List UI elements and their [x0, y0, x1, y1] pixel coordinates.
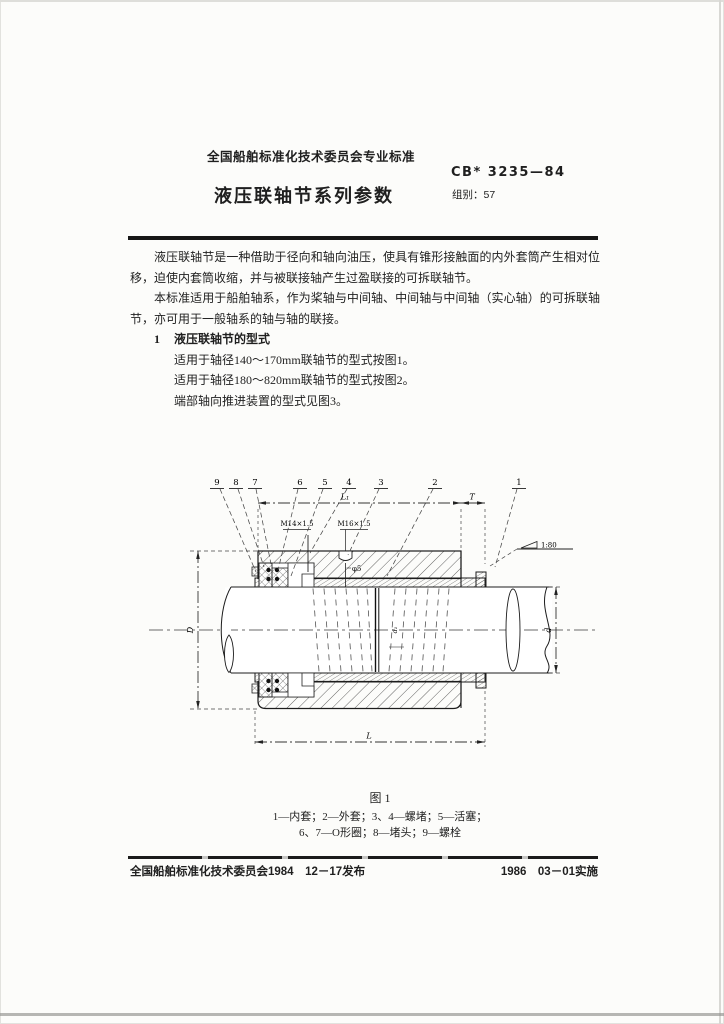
taper-ratio-label: 1:80 — [541, 542, 557, 550]
dim-L-label: L — [365, 732, 371, 741]
footer-issue-date: 全国船舶标准化技术委员会1984 12－17发布 — [130, 863, 365, 879]
figure-caption: 图 1 — [145, 789, 615, 806]
callout-5: 5 — [322, 478, 327, 488]
callout-8: 8 — [233, 478, 238, 488]
taper-note: 1:80 — [490, 542, 573, 567]
figure-legend-line-1: 1—内套；2—外套；3、4—螺堵；5—活塞； — [145, 809, 615, 825]
taper-symbol-icon — [521, 542, 537, 549]
m16-thread-label: M16×1.5 — [337, 520, 370, 528]
m14-thread-label: M14×1.5 — [280, 520, 313, 528]
shaft: d₁ — [149, 587, 597, 673]
figure-1-drawing: d₁ — [145, 465, 605, 765]
dimension-T: T — [461, 493, 485, 565]
scanned-standard-page: 全国船舶标准化技术委员会专业标准 CB* 3235—84 组别：57 液压联轴节… — [0, 0, 724, 1024]
piston-seal-assembly-top — [252, 563, 314, 587]
scan-edge-bottom — [0, 1013, 724, 1016]
footer-divider-rule — [128, 856, 598, 859]
scan-edge-right — [719, 0, 721, 1024]
section-1-title: 液压联轴节的型式 — [174, 332, 270, 346]
dim-d-label: d — [544, 627, 553, 632]
joint-diameter-label: d₁ — [391, 627, 399, 634]
standards-committee-header: 全国船舶标准化技术委员会专业标准 — [207, 146, 415, 165]
callout-3: 3 — [378, 478, 383, 488]
bolt-bottom — [252, 684, 259, 693]
gland-top — [259, 563, 272, 587]
figure-caption-block: 图 1 1—内套；2—外套；3、4—螺堵；5—活塞； 6、7—O形圈；8—堵头；… — [145, 789, 615, 841]
shaft-right-break — [506, 589, 520, 671]
gland-bottom — [259, 673, 272, 697]
standard-number: CB* 3235—84 — [451, 165, 566, 180]
section-1-line-2: 适用于轴径180～820mm联轴节的型式按图2。 — [130, 370, 600, 391]
phi5-hole-label: φ5 — [352, 565, 361, 573]
page-title: 液压联轴节系列参数 — [214, 182, 394, 208]
group-number: 组别：57 — [452, 187, 495, 202]
section-1-heading: 1液压联轴节的型式 — [130, 329, 600, 350]
figure-legend-line-2: 6、7—O形圈；8—堵头；9—螺栓 — [145, 825, 615, 841]
paragraph-definition: 液压联轴节是一种借助于径向和轴向油压，使具有锥形接触面的内外套筒产生相对位移，迫… — [130, 247, 600, 288]
callout-4: 4 — [346, 478, 351, 488]
callout-6: 6 — [297, 478, 302, 488]
paragraph-scope: 本标准适用于船舶轴系，作为桨轴与中间轴、中间轴与中间轴（实心轴）的可拆联轴节，亦… — [130, 288, 600, 329]
piston-seal-assembly-bottom — [252, 673, 314, 697]
scan-edge-top — [0, 0, 724, 2]
section-1-number: 1 — [154, 332, 160, 346]
piston-bottom — [272, 673, 288, 692]
callout-1: 1 — [516, 478, 521, 488]
body-text: 液压联轴节是一种借助于径向和轴向油压，使具有锥形接触面的内外套筒产生相对位移，迫… — [130, 247, 600, 411]
dim-T-label: T — [469, 493, 475, 502]
shaft-left-break — [225, 635, 234, 673]
m16-plug-hole — [339, 552, 352, 561]
section-1-line-3: 端部轴向推进装置的型式见图3。 — [130, 391, 600, 412]
piston-top — [272, 568, 288, 587]
dim-L1-label: L₁ — [340, 493, 350, 502]
dim-D-label: D — [186, 626, 195, 634]
title-divider-rule — [128, 236, 598, 240]
callout-9: 9 — [214, 478, 219, 488]
callout-2: 2 — [432, 478, 437, 488]
section-1-line-1: 适用于轴径140～170mm联轴节的型式按图1。 — [130, 350, 600, 371]
callout-7: 7 — [252, 478, 257, 488]
